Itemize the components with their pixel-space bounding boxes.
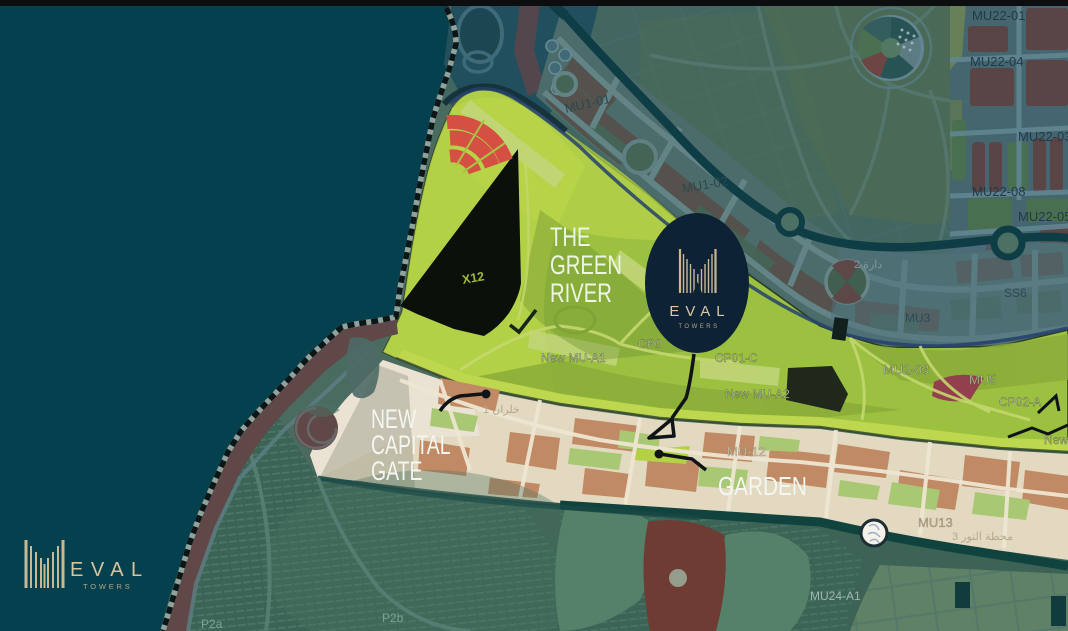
svg-text:THE: THE — [550, 222, 591, 253]
svg-text:New MU-A1: New MU-A1 — [541, 351, 606, 365]
svg-text:CP0: CP0 — [638, 337, 662, 351]
svg-text:MU13: MU13 — [918, 515, 953, 530]
svg-text:SS6: SS6 — [1004, 286, 1027, 300]
svg-text:خلران 1: خلران 1 — [483, 404, 520, 416]
svg-text:MU3: MU3 — [905, 311, 931, 325]
svg-text:MU5: MU5 — [969, 372, 996, 387]
svg-text:New MU-A2: New MU-A2 — [725, 387, 790, 401]
svg-text:P2a: P2a — [201, 617, 223, 631]
svg-text:محطة النور 3: محطة النور 3 — [952, 531, 1013, 543]
svg-text:GREEN: GREEN — [550, 250, 622, 281]
svg-text:GATE: GATE — [371, 456, 422, 486]
svg-text:MU22-01: MU22-01 — [972, 8, 1025, 23]
svg-text:P2b: P2b — [382, 611, 404, 625]
svg-text:MU22-05: MU22-05 — [1018, 209, 1068, 224]
svg-text:CP02-A: CP02-A — [999, 395, 1041, 409]
svg-text:CP01-C: CP01-C — [715, 351, 758, 365]
svg-text:EVAL: EVAL — [70, 559, 150, 581]
svg-text:EVAL: EVAL — [669, 303, 730, 320]
svg-text:RIVER: RIVER — [550, 278, 612, 309]
svg-text:MU2-03: MU2-03 — [883, 362, 929, 377]
svg-text:MU22-03: MU22-03 — [1018, 129, 1068, 144]
svg-text:MU22-04: MU22-04 — [970, 54, 1023, 69]
svg-text:TOWERS: TOWERS — [678, 324, 719, 330]
svg-text:TOWERS: TOWERS — [83, 582, 133, 591]
svg-text:MU22-08: MU22-08 — [972, 184, 1025, 199]
svg-text:2 دارة: 2 دارة — [854, 259, 882, 271]
svg-text:MU-12: MU-12 — [727, 444, 766, 459]
svg-text:MU24-A1: MU24-A1 — [810, 589, 861, 603]
svg-text:GARDEN: GARDEN — [718, 472, 807, 501]
